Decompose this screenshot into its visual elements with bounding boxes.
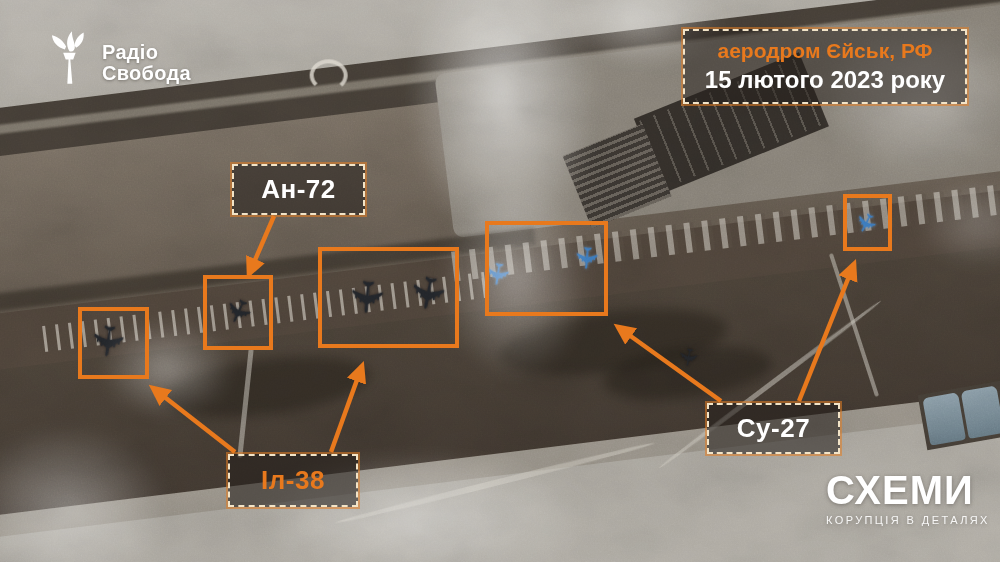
greenhouse-roof [961,385,1000,439]
schemes-brand-tagline: КОРУПЦІЯ В ДЕТАЛЯХ [826,514,990,526]
annotated-satellite-image: ✈ ✈ ✈ ✈ ✈ ✈ ✈ ✈ [0,0,1000,562]
label-an72-text: Ан-72 [261,174,336,205]
label-il38-text: Іл-38 [261,465,325,496]
radio-svoboda-logo: Радіо Свобода [44,28,191,86]
schemes-brand: СХЕМИ КОРУПЦІЯ В ДЕТАЛЯХ [826,470,990,526]
info-box: аеродром Єйськ, РФ 15 лютого 2023 року [683,29,967,104]
info-box-date: 15 лютого 2023 року [705,66,945,94]
radio-svoboda-line1: Радіо [102,42,191,63]
highlight-box-su27-pair [485,221,608,316]
label-su27: Су-27 [707,403,840,454]
highlight-box-su27-single [843,194,892,251]
label-an72: Ан-72 [232,164,365,215]
highlight-box-il38-left [78,307,149,379]
radio-svoboda-wordmark: Радіо Свобода [102,42,191,84]
greenhouse-roof [922,392,966,446]
schemes-brand-name: СХЕМИ [826,470,990,510]
label-il38: Іл-38 [228,454,358,507]
highlight-box-il38-pair [318,247,459,348]
info-box-location: аеродром Єйськ, РФ [717,39,932,63]
label-su27-text: Су-27 [737,413,810,444]
highlight-box-an72 [203,275,273,350]
radio-svoboda-torch-icon [44,28,94,86]
radio-svoboda-line2: Свобода [102,63,191,84]
